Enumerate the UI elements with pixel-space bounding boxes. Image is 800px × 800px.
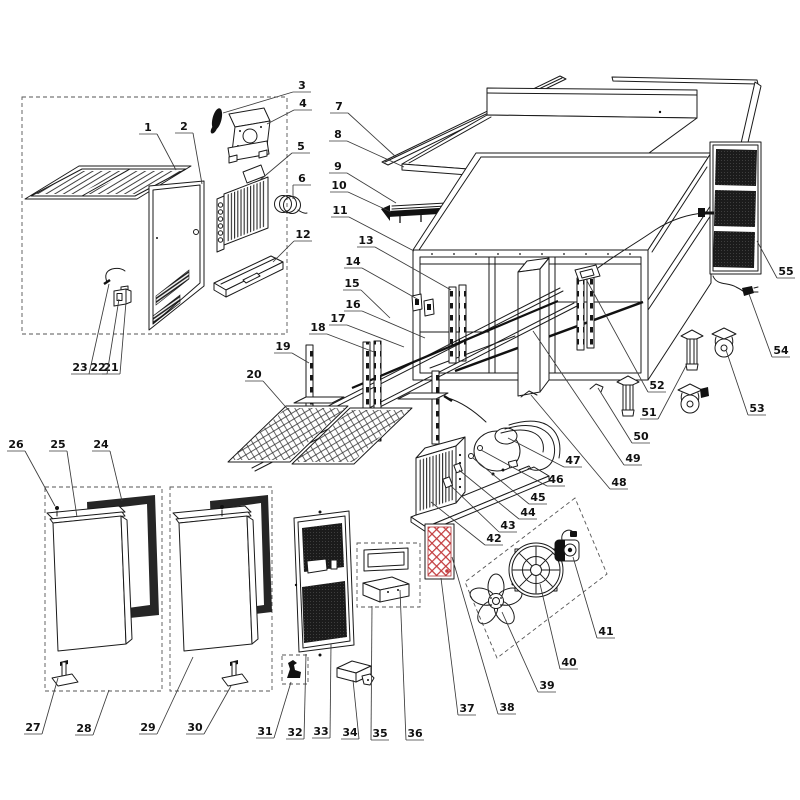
svg-text:12: 12 xyxy=(295,228,310,241)
part-label-40: 40 xyxy=(540,584,578,669)
svg-text:37: 37 xyxy=(459,702,474,715)
diagram-canvas: 1234567891011121314151617181920212223242… xyxy=(0,0,800,800)
part-label-35: 35 xyxy=(371,606,389,740)
svg-text:55: 55 xyxy=(778,265,793,278)
door-part25 xyxy=(47,506,132,651)
part-label-25: 25 xyxy=(49,438,77,517)
part-label-2: 2 xyxy=(175,120,202,184)
svg-text:29: 29 xyxy=(140,721,155,734)
junction-box-part34 xyxy=(337,661,374,685)
svg-text:47: 47 xyxy=(565,454,580,467)
hinge-part27 xyxy=(52,660,78,686)
svg-text:17: 17 xyxy=(330,312,345,325)
svg-text:7: 7 xyxy=(335,100,343,113)
svg-text:52: 52 xyxy=(649,379,664,392)
svg-text:51: 51 xyxy=(641,406,656,419)
part-label-53: 53 xyxy=(726,350,766,415)
svg-text:20: 20 xyxy=(246,368,262,381)
hinge-part30 xyxy=(222,660,248,686)
side-panel-part2 xyxy=(149,181,204,330)
svg-text:42: 42 xyxy=(486,532,501,545)
door-part29 xyxy=(173,506,258,651)
part-label-26: 26 xyxy=(7,438,55,506)
svg-text:24: 24 xyxy=(93,438,109,451)
svg-text:45: 45 xyxy=(530,491,545,504)
control-display-part35-36 xyxy=(363,548,409,602)
svg-text:10: 10 xyxy=(331,179,347,192)
svg-text:50: 50 xyxy=(633,430,649,443)
svg-text:11: 11 xyxy=(332,204,347,217)
svg-text:23: 23 xyxy=(72,361,87,374)
louver-panel-part33 xyxy=(294,511,354,657)
mounting-bracket-part31 xyxy=(287,660,301,678)
svg-text:36: 36 xyxy=(407,727,423,740)
svg-text:1: 1 xyxy=(144,121,152,134)
power-cord-part54 xyxy=(713,276,758,296)
wire-shelves-part20 xyxy=(228,406,412,464)
svg-text:32: 32 xyxy=(287,726,302,739)
part-label-12: 12 xyxy=(273,228,312,262)
part-label-41: 41 xyxy=(573,557,615,638)
svg-text:31: 31 xyxy=(257,725,272,738)
svg-text:54: 54 xyxy=(773,344,789,357)
svg-text:3: 3 xyxy=(298,79,306,92)
svg-text:35: 35 xyxy=(372,727,387,740)
fan-impeller-part3 xyxy=(209,107,224,134)
svg-text:44: 44 xyxy=(520,506,536,519)
svg-text:26: 26 xyxy=(8,438,24,451)
part-label-55: 55 xyxy=(757,241,795,278)
part-label-28: 28 xyxy=(75,690,109,735)
part-label-37: 37 xyxy=(441,578,476,715)
fan-motor-part41 xyxy=(555,530,579,561)
svg-text:28: 28 xyxy=(76,722,91,735)
part-label-1: 1 xyxy=(139,121,176,170)
svg-text:25: 25 xyxy=(50,438,65,451)
svg-text:22: 22 xyxy=(90,361,105,374)
part-label-4: 4 xyxy=(267,97,312,124)
svg-text:53: 53 xyxy=(749,402,764,415)
svg-text:30: 30 xyxy=(187,721,203,734)
svg-text:33: 33 xyxy=(313,725,328,738)
svg-text:46: 46 xyxy=(548,473,564,486)
svg-text:18: 18 xyxy=(310,321,325,334)
condenser-coil-part5 xyxy=(217,165,268,252)
part-label-30: 30 xyxy=(186,686,231,734)
door-switch-part21-22 xyxy=(114,286,131,306)
part-label-34: 34 xyxy=(341,680,359,739)
part-label-32: 32 xyxy=(286,654,306,739)
svg-text:8: 8 xyxy=(334,128,342,141)
svg-text:41: 41 xyxy=(598,625,613,638)
part-label-31: 31 xyxy=(256,682,291,738)
exploded-parts-diagram: 1234567891011121314151617181920212223242… xyxy=(0,0,800,800)
part-label-20: 20 xyxy=(245,368,291,413)
part-label-27: 27 xyxy=(24,678,58,734)
svg-text:16: 16 xyxy=(345,298,361,311)
svg-text:38: 38 xyxy=(499,701,514,714)
part-label-29: 29 xyxy=(139,657,193,734)
part-label-36: 36 xyxy=(400,590,424,740)
coil-tubing-part6 xyxy=(275,196,308,214)
svg-text:48: 48 xyxy=(611,476,626,489)
bracket-group-box xyxy=(282,655,308,684)
part-label-38: 38 xyxy=(452,557,516,714)
corner-bracket-part50 xyxy=(590,384,603,392)
evaporator-column-part49 xyxy=(518,258,549,396)
part-label-19: 19 xyxy=(274,340,309,363)
svg-text:27: 27 xyxy=(25,721,40,734)
svg-text:2: 2 xyxy=(180,120,188,133)
fan-assembly-part39-41 xyxy=(465,498,607,658)
svg-text:39: 39 xyxy=(539,679,554,692)
svg-text:19: 19 xyxy=(275,340,290,353)
drain-tray-part12 xyxy=(214,256,283,297)
motor-bracket-part4 xyxy=(228,108,270,163)
part-label-3: 3 xyxy=(223,79,311,113)
svg-text:5: 5 xyxy=(297,140,305,153)
svg-text:15: 15 xyxy=(344,277,359,290)
part-label-24: 24 xyxy=(92,438,122,501)
svg-text:34: 34 xyxy=(342,726,358,739)
capillary-tube-part23 xyxy=(104,268,125,284)
svg-text:40: 40 xyxy=(561,656,577,669)
svg-text:4: 4 xyxy=(299,97,307,110)
part-label-6: 6 xyxy=(293,172,311,199)
part-label-33: 33 xyxy=(312,644,331,738)
svg-text:43: 43 xyxy=(500,519,515,532)
air-filter-part37 xyxy=(425,524,454,579)
svg-text:6: 6 xyxy=(298,172,306,185)
svg-text:49: 49 xyxy=(625,452,640,465)
part-label-54: 54 xyxy=(749,294,790,357)
svg-text:14: 14 xyxy=(345,255,361,268)
svg-text:9: 9 xyxy=(334,160,342,173)
svg-text:13: 13 xyxy=(358,234,373,247)
